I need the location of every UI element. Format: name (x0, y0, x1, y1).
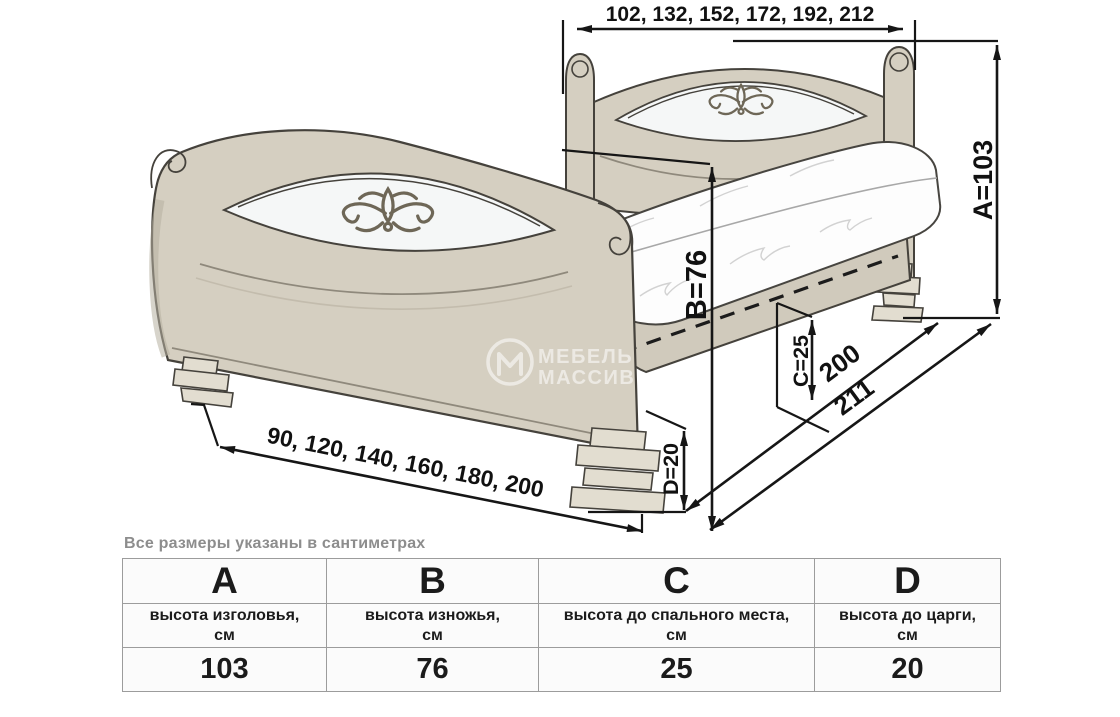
col-d-description: высота до царги,см (815, 604, 1001, 648)
col-a-description: высота изголовья,см (123, 604, 327, 648)
dim-label-height-a: A=103 (968, 140, 998, 220)
dim-label-headboard-widths: 102, 132, 152, 172, 192, 212 (606, 3, 875, 26)
col-b-letter: B (327, 559, 539, 604)
col-b-value: 76 (327, 648, 539, 692)
dim-label-height-b: B=76 (681, 250, 713, 320)
units-note: Все размеры указаны в сантиметрах (124, 535, 425, 553)
col-a-value: 103 (123, 648, 327, 692)
bed-illustration: МЕБЕЛЬ МАССИВ 102, 132, 152, 172, 192, 2… (0, 0, 1120, 556)
spec-table-letter-row: A B C D (123, 559, 1001, 604)
col-d-value: 20 (815, 648, 1001, 692)
dim-label-footboard-widths: 90, 120, 140, 160, 180, 200 (265, 422, 546, 503)
spec-table-value-row: 103 76 25 20 (123, 648, 1001, 692)
watermark-line1: МЕБЕЛЬ (538, 346, 633, 368)
col-b-description: высота изножья,см (327, 604, 539, 648)
col-a-letter: A (123, 559, 327, 604)
bed-dimension-diagram: МЕБЕЛЬ МАССИВ 102, 132, 152, 172, 192, 2… (0, 0, 1120, 556)
spec-table: A B C D высота изголовья,см высота изнож… (122, 558, 1001, 692)
watermark-line2: МАССИВ (538, 367, 635, 389)
col-d-letter: D (815, 559, 1001, 604)
col-c-description: высота до спального места,см (539, 604, 815, 648)
spec-table-description-row: высота изголовья,см высота изножья,см вы… (123, 604, 1001, 648)
col-c-letter: C (539, 559, 815, 604)
dim-label-height-d: D=20 (659, 443, 683, 495)
col-c-value: 25 (539, 648, 815, 692)
dim-label-height-c: C=25 (789, 335, 813, 387)
